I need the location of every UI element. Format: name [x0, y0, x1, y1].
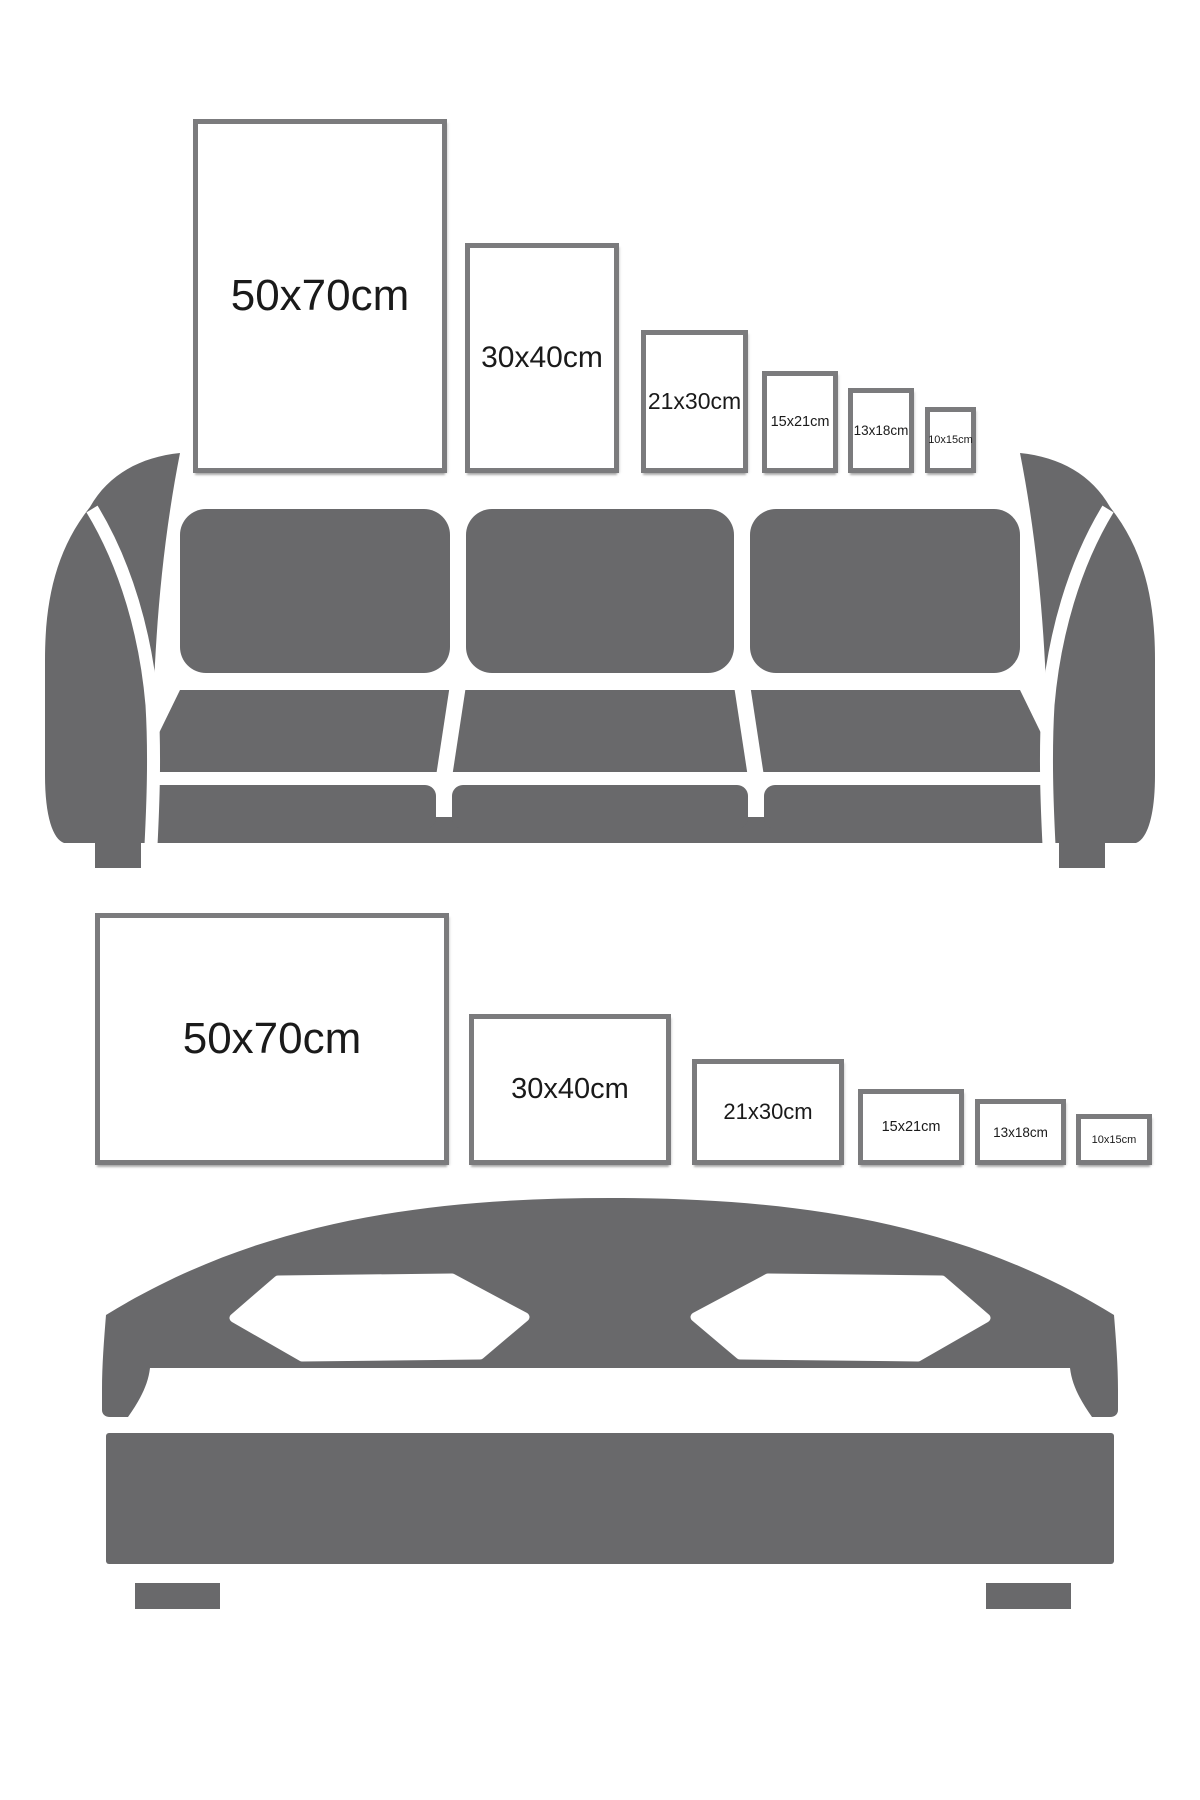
bed-pillow-left	[234, 1278, 525, 1357]
bed-pillow-right	[695, 1278, 986, 1357]
frame-landscape-30x40: 30x40cm	[469, 1014, 671, 1165]
frame-size-label: 50x70cm	[183, 1014, 362, 1064]
bed-headboard	[102, 1198, 1118, 1417]
frame-size-label: 30x40cm	[511, 1073, 629, 1106]
frame-size-label: 10x15cm	[1092, 1134, 1137, 1146]
frame-landscape-21x30: 21x30cm	[692, 1059, 844, 1165]
bed-base	[106, 1433, 1114, 1564]
sofa-seat-top	[140, 685, 1060, 777]
sofa-seat-cushions	[140, 785, 1060, 843]
frame-size-label: 30x40cm	[481, 341, 603, 375]
frame-landscape-13x18: 13x18cm	[975, 1099, 1066, 1165]
frame-landscape-50x70: 50x70cm	[95, 913, 449, 1165]
frame-size-label: 15x21cm	[882, 1119, 941, 1135]
bed-icon	[80, 1190, 1140, 1615]
frame-size-label: 15x21cm	[771, 414, 830, 430]
frame-size-label: 21x30cm	[723, 1099, 812, 1125]
bed-feet	[135, 1583, 1071, 1609]
frame-portrait-50x70: 50x70cm	[193, 119, 447, 473]
frame-size-label: 21x30cm	[648, 388, 741, 415]
sofa-feet	[95, 841, 1105, 868]
sofa-icon	[40, 445, 1160, 870]
size-guide-infographic: 50x70cm 30x40cm 21x30cm 15x21cm 13x18cm …	[0, 0, 1200, 1800]
frame-size-label: 13x18cm	[993, 1125, 1048, 1140]
sofa-back-cushions	[180, 509, 1020, 673]
frame-landscape-15x21: 15x21cm	[858, 1089, 964, 1165]
frame-portrait-30x40: 30x40cm	[465, 243, 619, 473]
frame-size-label: 50x70cm	[231, 271, 410, 321]
frame-size-label: 13x18cm	[854, 423, 909, 438]
frame-landscape-10x15: 10x15cm	[1076, 1114, 1152, 1165]
